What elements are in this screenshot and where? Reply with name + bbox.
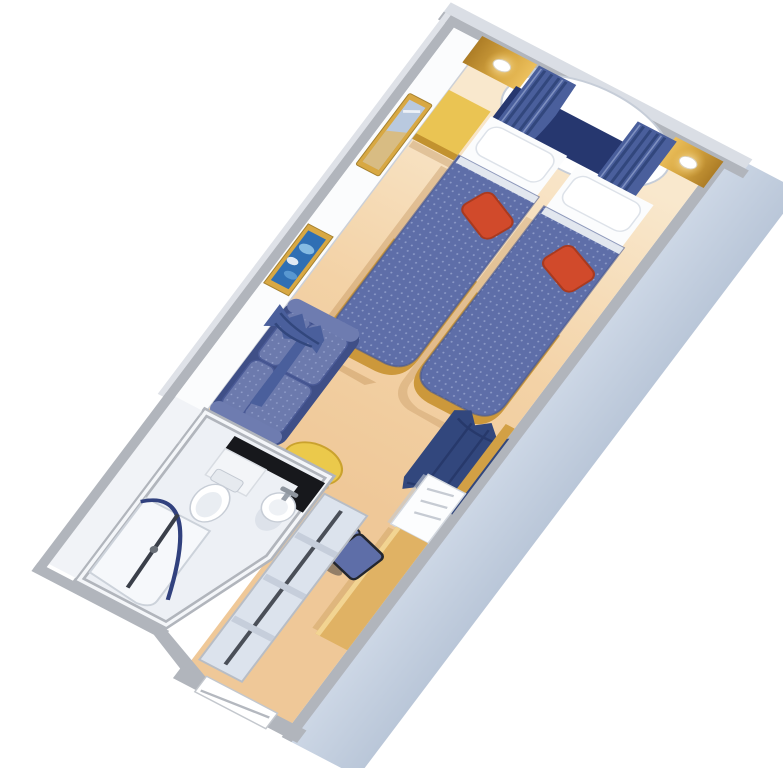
stateroom-floorplan-illustration [0, 0, 783, 768]
floorplan-svg [0, 0, 783, 768]
